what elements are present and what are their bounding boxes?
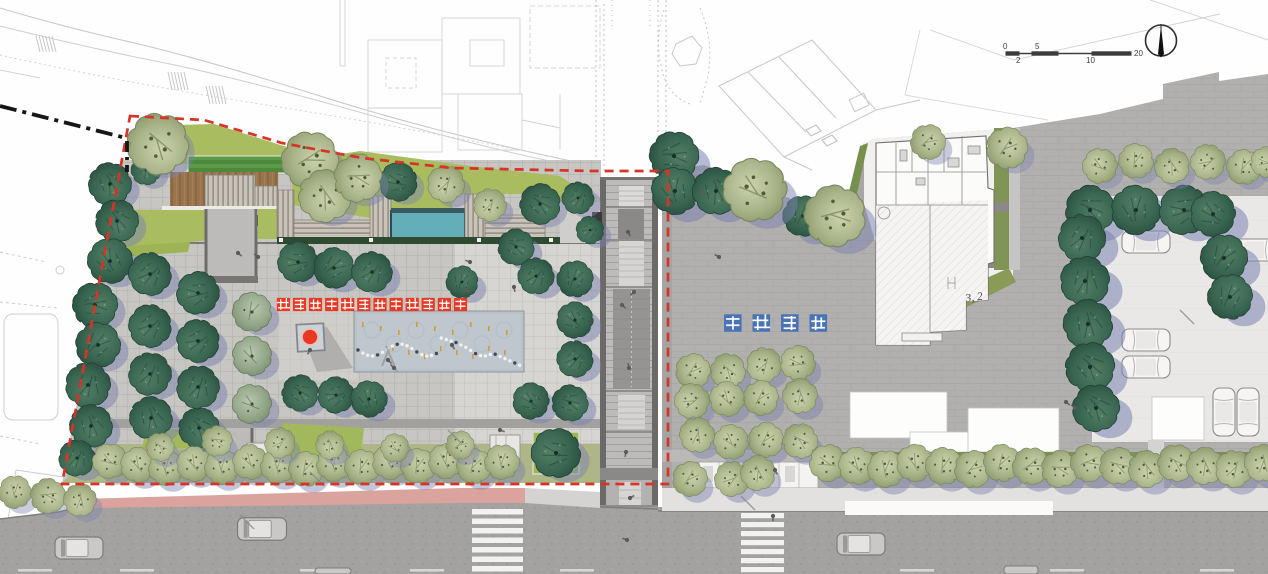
svg-text:2: 2 xyxy=(1016,56,1021,65)
svg-text:20: 20 xyxy=(1134,49,1143,58)
svg-text:3, 2: 3, 2 xyxy=(964,291,984,305)
svg-text:10: 10 xyxy=(1086,56,1095,65)
svg-text:5: 5 xyxy=(1035,42,1040,51)
svg-text:0: 0 xyxy=(1003,42,1008,51)
